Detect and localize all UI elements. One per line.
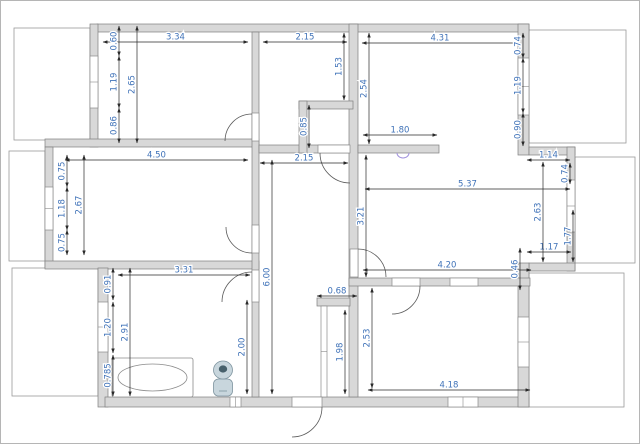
- wall: [97, 24, 529, 32]
- door-opening: [252, 225, 259, 253]
- dimension-label: 1.19: [110, 73, 120, 92]
- dimension-label: 5.37: [458, 180, 477, 190]
- toilet-tank: [214, 379, 233, 396]
- balcony-outline: [529, 30, 626, 143]
- floorplan-page: 3.342.154.314.502.151.805.371.141.173.31…: [0, 0, 640, 444]
- dimension-label: 3.34: [166, 33, 185, 43]
- dimension-label: 0.75: [58, 162, 68, 181]
- dimension-label: 6.00: [263, 268, 273, 287]
- door-opening: [392, 278, 420, 286]
- dimension-label: 4.50: [147, 151, 166, 161]
- door-opening: [252, 270, 259, 302]
- dimension-label: 0.90: [514, 120, 524, 139]
- balcony-outline: [12, 268, 98, 396]
- dimension-label: 2.15: [296, 33, 315, 43]
- dimension-label: 1.80: [391, 126, 410, 136]
- balcony-outline: [575, 157, 635, 263]
- dimension-label: 0.74: [514, 36, 524, 55]
- balcony-outline: [529, 273, 624, 407]
- dimension-label: 2.91: [121, 323, 131, 342]
- dimension-label: 2.53: [363, 329, 373, 348]
- wall: [252, 32, 259, 397]
- dimension-label: 0.46: [511, 260, 521, 279]
- dimension-label: 0.91: [104, 275, 114, 294]
- door-opening: [252, 113, 259, 141]
- dimension-label: 0.86: [110, 116, 120, 135]
- dimension-label: 0.68: [328, 287, 347, 297]
- dimension-label: 2.63: [534, 203, 544, 222]
- dimension-label: 1.20: [104, 318, 114, 337]
- dimension-label: 1.98: [336, 343, 346, 362]
- dimension-label: 1.17: [540, 243, 559, 253]
- balcony-outline: [9, 151, 45, 261]
- dimension-label: 1.14: [539, 151, 558, 161]
- dimension-label: 4.31: [431, 34, 450, 44]
- wall: [45, 139, 259, 147]
- dimension-label: 1.18: [58, 199, 68, 218]
- dimension-label: 3.21: [357, 207, 367, 226]
- wall: [349, 278, 530, 286]
- dimension-label: 2.54: [360, 79, 370, 98]
- dimension-label: 1.53: [335, 57, 345, 76]
- door-opening: [350, 249, 358, 277]
- dimension-label: 2.65: [128, 75, 138, 94]
- wall: [358, 145, 439, 153]
- dimension-label: 0.75: [58, 233, 68, 252]
- balcony-outline: [14, 28, 90, 140]
- dimension-label: 1.77: [564, 227, 574, 246]
- door-opening: [318, 145, 350, 153]
- wall: [529, 263, 575, 271]
- dimension-label: 1.19: [514, 76, 524, 95]
- dimension-label: 0.785: [104, 363, 114, 387]
- wall: [45, 261, 259, 269]
- cased-opening: [450, 278, 478, 286]
- dimension-label: 3.31: [175, 266, 194, 276]
- dimension-label: 4.18: [440, 381, 459, 391]
- dimension-label: 2.67: [75, 196, 85, 215]
- dimension-label: 2.00: [238, 338, 248, 357]
- dimension-label: 2.15: [295, 154, 314, 164]
- floorplan-svg: 3.342.154.314.502.151.805.371.141.173.31…: [0, 0, 640, 444]
- dimension-label: 0.85: [300, 117, 310, 136]
- wall: [317, 298, 350, 306]
- dimension-label: 0.60: [110, 32, 120, 51]
- door-opening: [292, 397, 322, 407]
- dimension-label: 4.20: [438, 261, 457, 271]
- dimension-label: 0.74: [561, 164, 571, 183]
- toilet-drain: [219, 365, 227, 372]
